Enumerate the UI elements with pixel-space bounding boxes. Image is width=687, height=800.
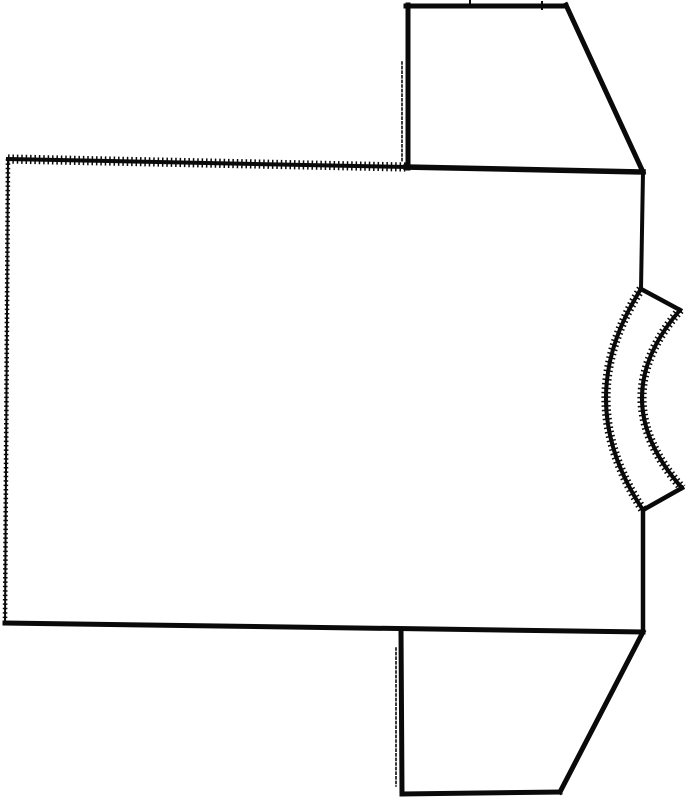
bottom-sleeve-diagonal-edge: [560, 632, 643, 792]
body-bottom-edge: [5, 623, 643, 632]
body-left-edge-stitched: [5, 159, 8, 623]
body-shoulder-seam: [406, 167, 643, 172]
tshirt-pattern-figure: [0, 0, 687, 800]
bottom-sleeve-left-edge: [401, 630, 402, 794]
pattern-svg: [0, 0, 687, 800]
body-right-edge-upper: [641, 172, 643, 289]
top-sleeve-diagonal-edge: [566, 5, 643, 172]
neckband-top-cap: [641, 289, 680, 310]
neckband-inner-curve: [606, 289, 643, 510]
neckband-outer-curve: [642, 310, 682, 488]
bottom-sleeve-bottom-edge: [402, 792, 560, 794]
neckband-bottom-cap: [643, 488, 682, 510]
